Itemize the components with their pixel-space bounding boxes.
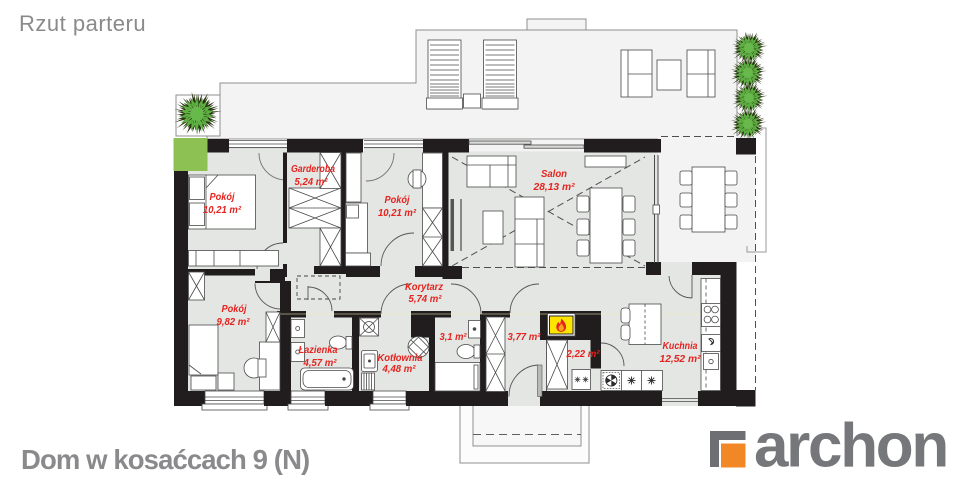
svg-text:5,74 m²: 5,74 m² [409,294,443,305]
svg-text:Pokój: Pokój [210,192,235,203]
svg-text:10,21 m²: 10,21 m² [203,205,242,216]
svg-text:Pokój: Pokój [385,195,410,206]
svg-text:archon: archon [754,412,947,481]
svg-text:Pokój: Pokój [222,304,247,315]
svg-text:10,21 m²: 10,21 m² [378,208,417,219]
svg-text:Garderoba: Garderoba [291,164,335,175]
svg-text:2,22 m²: 2,22 m² [566,349,601,360]
svg-text:9,82 m²: 9,82 m² [217,317,251,328]
svg-text:4,57 m²: 4,57 m² [303,358,338,369]
svg-text:Kuchnia: Kuchnia [663,341,698,352]
svg-text:4,48 m²: 4,48 m² [382,364,417,375]
svg-text:Łazienka: Łazienka [298,345,338,356]
svg-text:5,24 m²: 5,24 m² [295,177,329,188]
svg-text:Salon: Salon [541,169,567,180]
svg-text:28,13 m²: 28,13 m² [532,182,575,193]
svg-text:Kotłownia: Kotłownia [378,353,423,364]
svg-text:12,52 m²: 12,52 m² [660,354,702,365]
svg-text:3,77 m²: 3,77 m² [508,332,542,343]
svg-text:Rzut parteru: Rzut parteru [19,11,146,36]
svg-text:Dom w kosaćcach 9 (N): Dom w kosaćcach 9 (N) [21,444,309,475]
svg-text:3,1 m²: 3,1 m² [440,332,468,343]
svg-text:Korytarz: Korytarz [405,282,444,293]
